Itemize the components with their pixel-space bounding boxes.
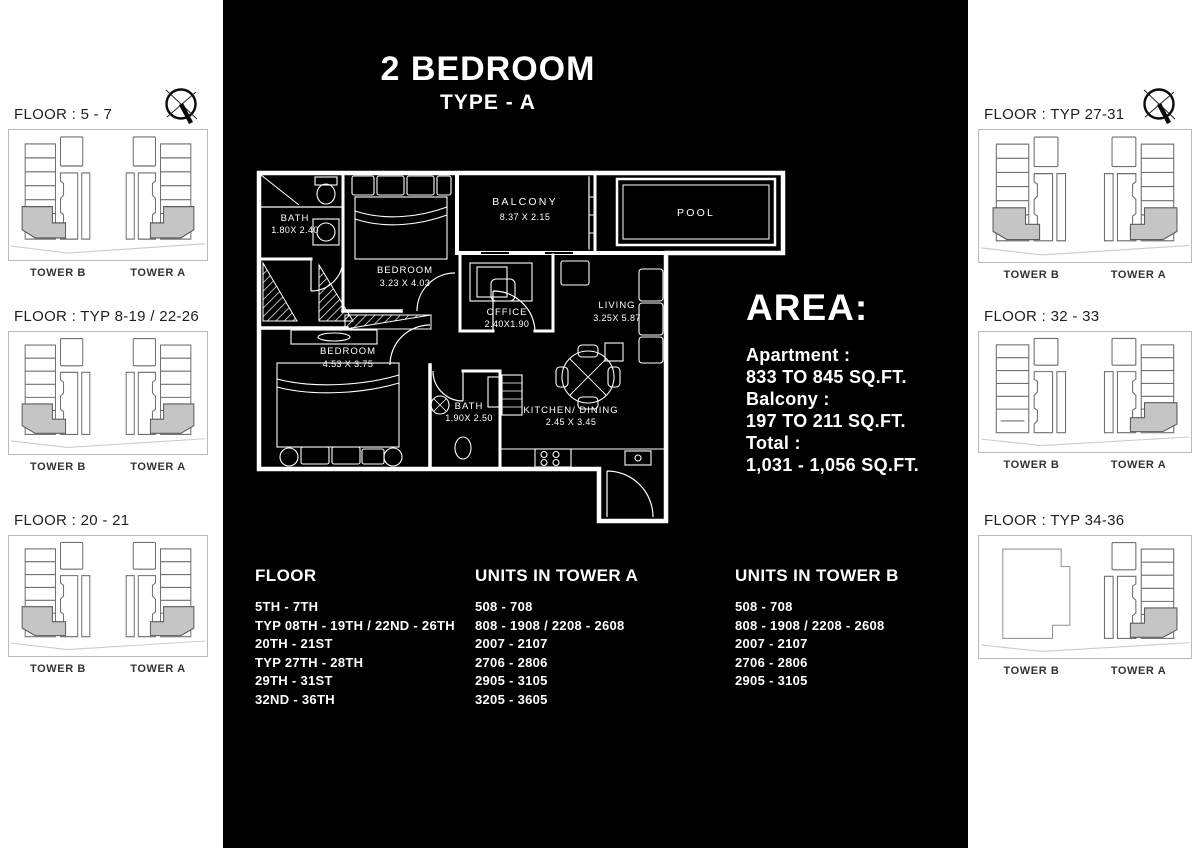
room-label-bedroom-1: BEDROOM	[377, 265, 433, 276]
keyplan-tower-labels: TOWER B TOWER A	[8, 461, 208, 473]
page-title: 2 BEDROOM	[253, 50, 723, 88]
floor-list-heading: FLOOR	[255, 566, 480, 586]
keyplan-tower-labels: TOWER B TOWER A	[8, 663, 208, 675]
floor-item: TYP 27TH - 28TH	[255, 654, 480, 673]
tower-a-label: TOWER A	[108, 663, 208, 675]
area-line: 1,031 - 1,056 SQ.FT.	[746, 454, 919, 476]
keyplan-title: FLOOR : 5 - 7	[8, 106, 208, 126]
tower-a-label: TOWER A	[108, 461, 208, 473]
room-dims-bath-1: 1.80X 2.40	[271, 225, 319, 235]
keyplan-diagram	[8, 535, 208, 657]
room-label-balcony: BALCONY	[492, 196, 558, 208]
keyplan-diagram	[978, 129, 1192, 263]
tower-b-label: TOWER B	[8, 267, 108, 279]
unit-range-item: 3205 - 3605	[475, 691, 725, 710]
room-dims-living: 3.25X 5.87	[593, 313, 641, 323]
units-tower-a-items: 508 - 708808 - 1908 / 2208 - 26082007 - …	[475, 598, 725, 710]
tower-a-label: TOWER A	[108, 267, 208, 279]
floor-item: 5TH - 7TH	[255, 598, 480, 617]
units-tower-b-items: 508 - 708808 - 1908 / 2208 - 26082007 - …	[735, 598, 965, 691]
keyplan-floors-5-7: FLOOR : 5 - 7 TOWER B TOWER A	[8, 106, 208, 279]
keyplan-tower-labels: TOWER B TOWER A	[978, 459, 1192, 471]
page-subtitle: TYPE - A	[253, 91, 723, 115]
units-tower-b-heading: UNITS IN TOWER B	[735, 566, 965, 586]
tower-b-label: TOWER B	[8, 663, 108, 675]
keyplan-tower-labels: TOWER B TOWER A	[978, 665, 1192, 677]
floor-list-items: 5TH - 7THTYP 08TH - 19TH / 22ND - 26TH20…	[255, 598, 480, 710]
keyplan-diagram	[8, 129, 208, 261]
keyplan-title: FLOOR : 32 - 33	[978, 308, 1192, 328]
room-label-living: LIVING	[598, 300, 635, 311]
floor-list: FLOOR 5TH - 7THTYP 08TH - 19TH / 22ND - …	[255, 566, 480, 710]
unit-range-item: 2905 - 3105	[475, 672, 725, 691]
floor-item: TYP 08TH - 19TH / 22ND - 26TH	[255, 617, 480, 636]
keyplan-tower-labels: TOWER B TOWER A	[8, 267, 208, 279]
tower-a-label: TOWER A	[1085, 269, 1192, 281]
floorplan-drawing: BATH 1.80X 2.40 BEDROOM 3.23 X 4.03 BALC…	[255, 163, 790, 528]
tower-a-label: TOWER A	[1085, 665, 1192, 677]
room-label-bath-1: BATH	[281, 213, 310, 224]
room-label-kitchen: KITCHEN/ DINING	[523, 405, 618, 416]
area-lines: Apartment :833 TO 845 SQ.FT.Balcony :197…	[746, 344, 919, 476]
room-dims-bedroom-1: 3.23 X 4.03	[380, 278, 430, 288]
room-label-office: OFFICE	[487, 307, 528, 318]
tower-b-label: TOWER B	[978, 269, 1085, 281]
keyplan-title: FLOOR : 20 - 21	[8, 512, 208, 532]
unit-range-item: 2007 - 2107	[475, 635, 725, 654]
keyplan-tower-labels: TOWER B TOWER A	[978, 269, 1192, 281]
room-label-pool: POOL	[677, 207, 715, 219]
tower-b-label: TOWER B	[978, 665, 1085, 677]
unit-range-item: 2007 - 2107	[735, 635, 965, 654]
room-label-bath-2: BATH	[455, 401, 484, 412]
units-tower-b-list: UNITS IN TOWER B 508 - 708808 - 1908 / 2…	[735, 566, 965, 691]
room-dims-bath-2: 1.90X 2.50	[445, 413, 493, 423]
units-tower-a-heading: UNITS IN TOWER A	[475, 566, 725, 586]
keyplan-diagram	[978, 331, 1192, 453]
keyplan-title: FLOOR : TYP 34-36	[978, 512, 1192, 532]
keyplan-diagram	[978, 535, 1192, 659]
room-dims-kitchen: 2.45 X 3.45	[546, 417, 596, 427]
keyplan-floors-32-33: FLOOR : 32 - 33 TOWER B TOWER A	[978, 308, 1192, 471]
keyplan-diagram	[8, 331, 208, 455]
keyplan-floors-8-19-22-26: FLOOR : TYP 8-19 / 22-26 TOWER B TOWER A	[8, 308, 208, 473]
area-line: 197 TO 211 SQ.FT.	[746, 410, 919, 432]
area-line: Balcony :	[746, 388, 919, 410]
unit-range-item: 2706 - 2806	[735, 654, 965, 673]
unit-range-item: 808 - 1908 / 2208 - 2608	[735, 617, 965, 636]
unit-range-item: 2905 - 3105	[735, 672, 965, 691]
room-dims-office: 2.40X1.90	[485, 319, 530, 329]
unit-range-item: 508 - 708	[735, 598, 965, 617]
floor-item: 29TH - 31ST	[255, 672, 480, 691]
units-tower-a-list: UNITS IN TOWER A 508 - 708808 - 1908 / 2…	[475, 566, 725, 710]
title-block: 2 BEDROOM TYPE - A	[253, 50, 723, 115]
keyplan-title: FLOOR : TYP 27-31	[978, 106, 1192, 126]
keyplan-title: FLOOR : TYP 8-19 / 22-26	[8, 308, 208, 328]
main-panel: 2 BEDROOM TYPE - A	[223, 0, 968, 848]
unit-range-item: 2706 - 2806	[475, 654, 725, 673]
area-line: Apartment :	[746, 344, 919, 366]
keyplan-floors-34-36: FLOOR : TYP 34-36 TOWER B TOWER A	[978, 512, 1192, 677]
keyplan-floors-27-31: FLOOR : TYP 27-31 TOWER B TOWER A	[978, 106, 1192, 281]
area-heading: AREA:	[746, 288, 919, 328]
area-line: 833 TO 845 SQ.FT.	[746, 366, 919, 388]
tower-a-label: TOWER A	[1085, 459, 1192, 471]
unit-range-item: 808 - 1908 / 2208 - 2608	[475, 617, 725, 636]
room-dims-balcony: 8.37 X 2.15	[500, 212, 550, 222]
room-dims-bedroom-2: 4.53 X 3.75	[323, 359, 373, 369]
area-block: AREA: Apartment :833 TO 845 SQ.FT.Balcon…	[746, 288, 919, 476]
floor-item: 20TH - 21ST	[255, 635, 480, 654]
brochure-page: 2 BEDROOM TYPE - A	[0, 0, 1200, 848]
unit-range-item: 508 - 708	[475, 598, 725, 617]
tower-b-label: TOWER B	[8, 461, 108, 473]
tower-b-label: TOWER B	[978, 459, 1085, 471]
door-arcs	[311, 259, 653, 517]
area-line: Total :	[746, 432, 919, 454]
keyplan-floors-20-21: FLOOR : 20 - 21 TOWER B TOWER A	[8, 512, 208, 675]
floor-item: 32ND - 36TH	[255, 691, 480, 710]
room-label-bedroom-2: BEDROOM	[320, 346, 376, 357]
